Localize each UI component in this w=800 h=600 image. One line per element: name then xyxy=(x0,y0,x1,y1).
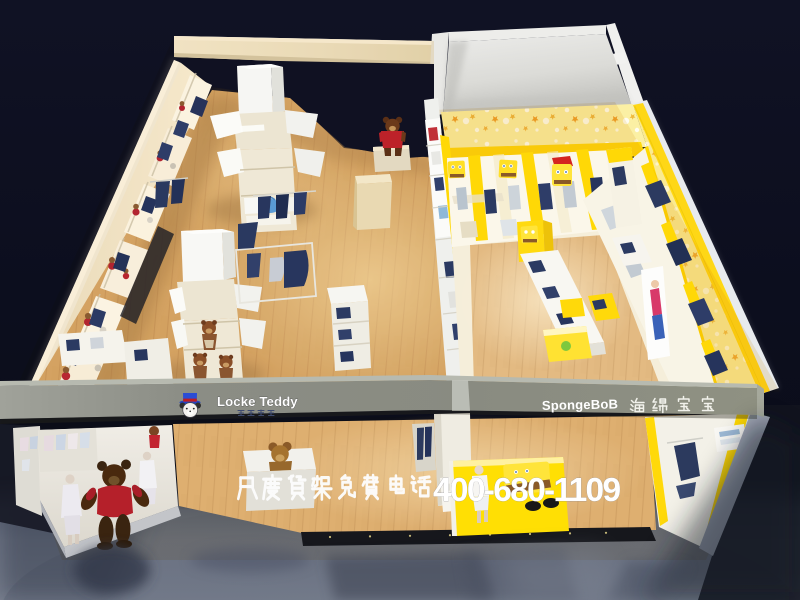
svg-text:SpongeBoB: SpongeBoB xyxy=(542,396,618,413)
svg-text:Locke Teddy: Locke Teddy xyxy=(217,394,298,409)
svg-text:400-680-1109: 400-680-1109 xyxy=(433,472,620,509)
